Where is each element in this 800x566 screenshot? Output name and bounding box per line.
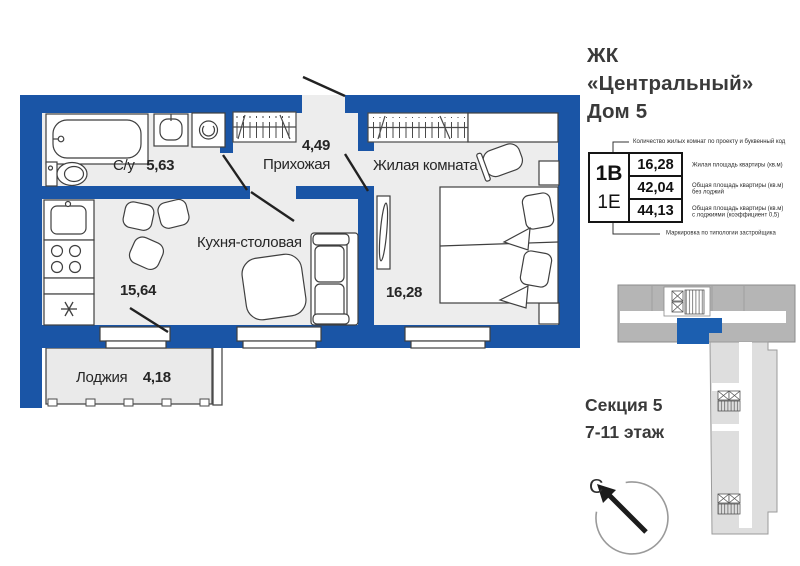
apartment-plan-page: ЖК «Центральный» Дом 5 С/у 5,63 4,49 При… (0, 0, 800, 566)
bed-icon (440, 187, 558, 308)
room-label-living: Жилая комната (373, 158, 477, 174)
legend-row3-line2: с лоджиями (коэффициент 0,5) (692, 212, 783, 219)
kitchen-sink-icon (44, 200, 94, 240)
washbasin-icon (154, 114, 188, 146)
living-room-window (405, 327, 490, 348)
legend-top-note: Количество жилых комнат по проекту и бук… (633, 138, 785, 145)
room-name: Лоджия (76, 369, 127, 386)
fridge-icon (44, 294, 94, 325)
legend-bottom-note: Маркировка по типологии застройщика (666, 230, 776, 237)
desk-icon (468, 113, 558, 142)
legend-notes: Количество жилых комнат по проекту и бук… (588, 136, 800, 256)
stove-icon (44, 240, 94, 278)
room-name: С/у (113, 157, 135, 174)
room-label-hallway: Прихожая (263, 157, 330, 173)
legend-row1-label: Жилая площадь квартиры (кв.м) (692, 162, 783, 169)
section-number: Секция 5 (585, 392, 664, 419)
elevator-icon (718, 494, 740, 514)
room-label-kitchen: Кухня-столовая (197, 235, 302, 251)
entrance-door-swing (303, 77, 345, 96)
project-title-line1: ЖК (587, 42, 754, 70)
kitchen-window (237, 327, 321, 348)
wardrobe-living-icon (368, 113, 468, 142)
windows (100, 327, 490, 348)
section-info: Секция 5 7-11 этаж (585, 392, 664, 446)
elevator-icon (672, 290, 704, 314)
room-area-kitchen: 15,64 (120, 283, 156, 299)
room-area-living: 16,28 (386, 285, 422, 301)
room-area: 5,63 (146, 157, 174, 174)
dining-table-icon (240, 252, 308, 322)
legend-row2-line2: без лоджий (692, 189, 783, 196)
toilet-icon (46, 162, 87, 186)
project-title-line3: Дом 5 (587, 98, 754, 126)
room-area-hallway: 4,49 (302, 138, 330, 154)
room-label-loggia: Лоджия 4,18 (76, 370, 171, 386)
tv-icon (377, 196, 390, 269)
north-label: С (589, 476, 603, 499)
washing-machine-icon (192, 113, 225, 147)
elevator-icon (718, 391, 740, 411)
north-arrow-icon (597, 484, 646, 532)
room-label-bathroom: С/у 5,63 (113, 158, 174, 174)
project-title-line2: «Центральный» (587, 70, 754, 98)
sofa-icon (311, 233, 358, 325)
compass (596, 482, 668, 554)
room-area: 4,18 (143, 369, 171, 386)
legend-row3-label: Общая площадь квартиры (кв.м) с лоджиями… (692, 205, 783, 218)
project-title: ЖК «Центральный» Дом 5 (587, 42, 754, 126)
floor-range: 7-11 этаж (585, 419, 664, 446)
wardrobe-hallway-icon (233, 112, 296, 142)
balcony-door-window (100, 327, 170, 348)
legend-row2-label: Общая площадь квартиры (кв.м) без лоджий (692, 182, 783, 195)
kitchen-counter (44, 278, 94, 294)
